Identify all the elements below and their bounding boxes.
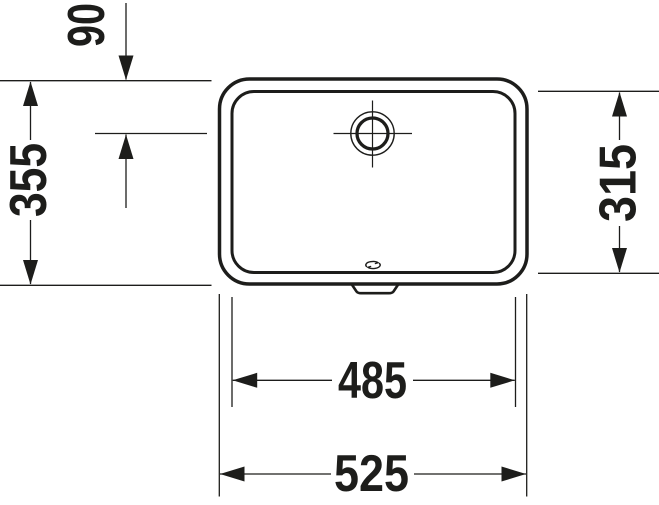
technical-drawing-canvas: 90 355 315: [0, 0, 659, 505]
dim-90-arrow-down-icon: [119, 56, 134, 81]
dim-355-arrow-up-icon: [23, 82, 38, 107]
dim-485-arrow-left-icon: [233, 373, 258, 388]
dim-315-label: 315: [590, 144, 648, 222]
dim-315-arrow-down-icon: [612, 248, 627, 273]
dim-355-label: 355: [0, 143, 58, 217]
basin-outer-rim: [220, 79, 528, 284]
dim-355-arrow-down-icon: [23, 260, 38, 285]
dim-90-label: 90: [58, 3, 116, 47]
basin-outline: [220, 79, 528, 284]
brand-squiggle-icon: [366, 261, 380, 268]
dim-485-arrow-right-icon: [490, 373, 515, 388]
brand-squiggle-bottom: [368, 264, 380, 269]
dimension-inner-depth: 315: [538, 91, 659, 273]
dim-525-label: 525: [334, 445, 409, 503]
dim-485-label: 485: [338, 352, 407, 410]
brand-squiggle-top: [366, 261, 378, 266]
dimension-drain-offset: 90: [58, 3, 207, 208]
dimension-drawing: 90 355 315: [0, 0, 659, 505]
dim-315-arrow-up-icon: [612, 92, 627, 117]
drain-crosshair-icon: [334, 101, 413, 168]
dimension-outer-depth: 355: [0, 81, 212, 286]
dim-525-arrow-left-icon: [220, 467, 245, 482]
dimension-inner-width: 485: [232, 297, 516, 410]
dim-90-arrow-up-icon: [119, 135, 134, 160]
dim-525-arrow-right-icon: [502, 467, 527, 482]
